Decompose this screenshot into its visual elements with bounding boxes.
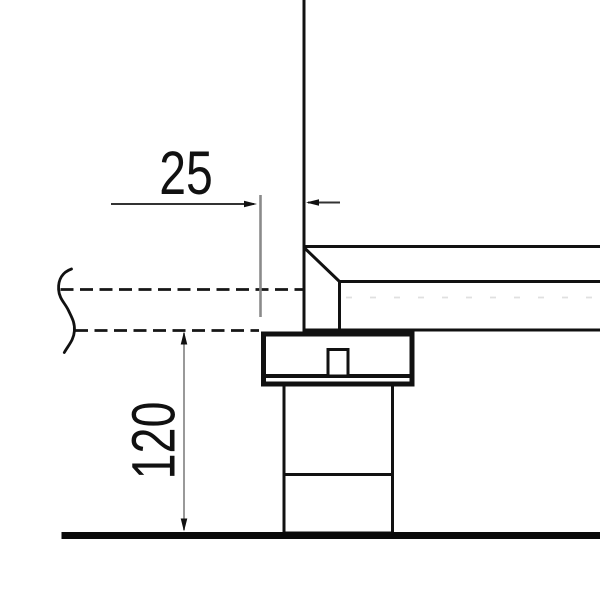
svg-text:25: 25 — [159, 139, 213, 208]
svg-text:120: 120 — [119, 402, 188, 480]
